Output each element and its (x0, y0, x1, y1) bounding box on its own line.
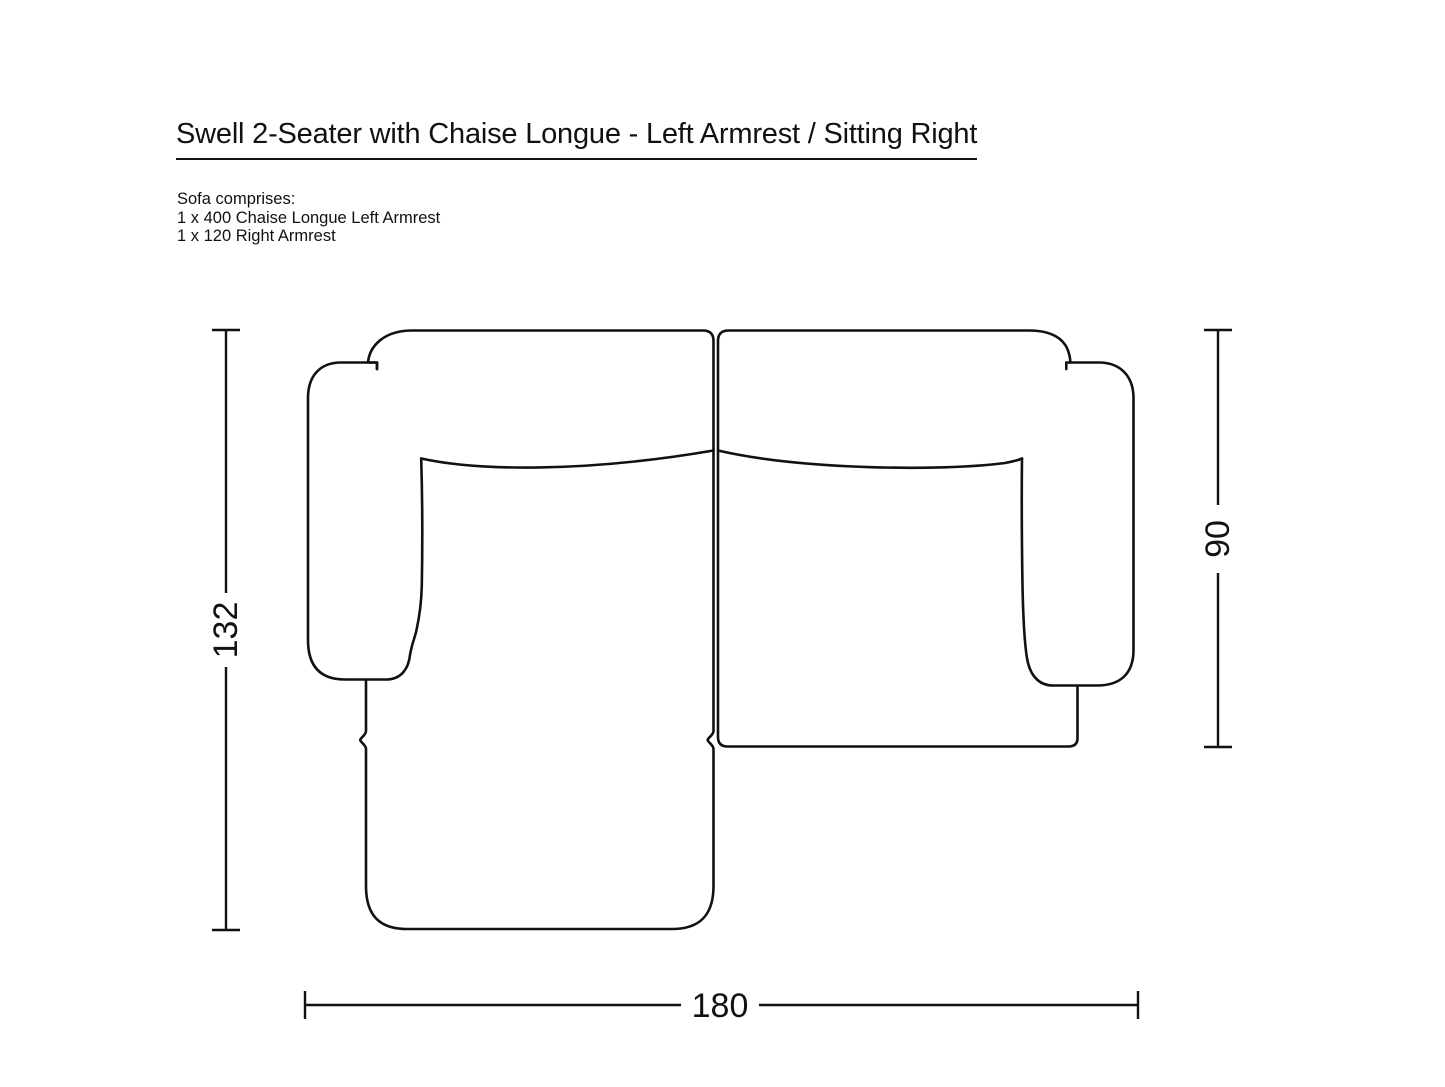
page: { "page": { "background_color": "#ffffff… (0, 0, 1445, 1087)
dimension-width: 180 (305, 987, 1138, 1025)
dimension-seat-depth: 90 (1199, 330, 1237, 747)
chaise-module-outline (360, 331, 713, 930)
left-seat-back-curve (421, 451, 713, 468)
right-module (718, 331, 1134, 747)
dimension-seat-depth-label: 90 (1199, 520, 1237, 558)
dimension-depth-label: 132 (207, 602, 245, 659)
sofa-top-view-diagram: 132 90 180 (0, 0, 1445, 1087)
right-seat-back-curve (718, 451, 1022, 468)
dimension-depth: 132 (207, 330, 245, 930)
right-armrest-outline (1022, 363, 1134, 686)
right-module-outline (718, 331, 1078, 747)
dimension-width-label: 180 (692, 987, 749, 1025)
left-armrest-outline (308, 363, 422, 680)
chaise-module (308, 331, 714, 930)
